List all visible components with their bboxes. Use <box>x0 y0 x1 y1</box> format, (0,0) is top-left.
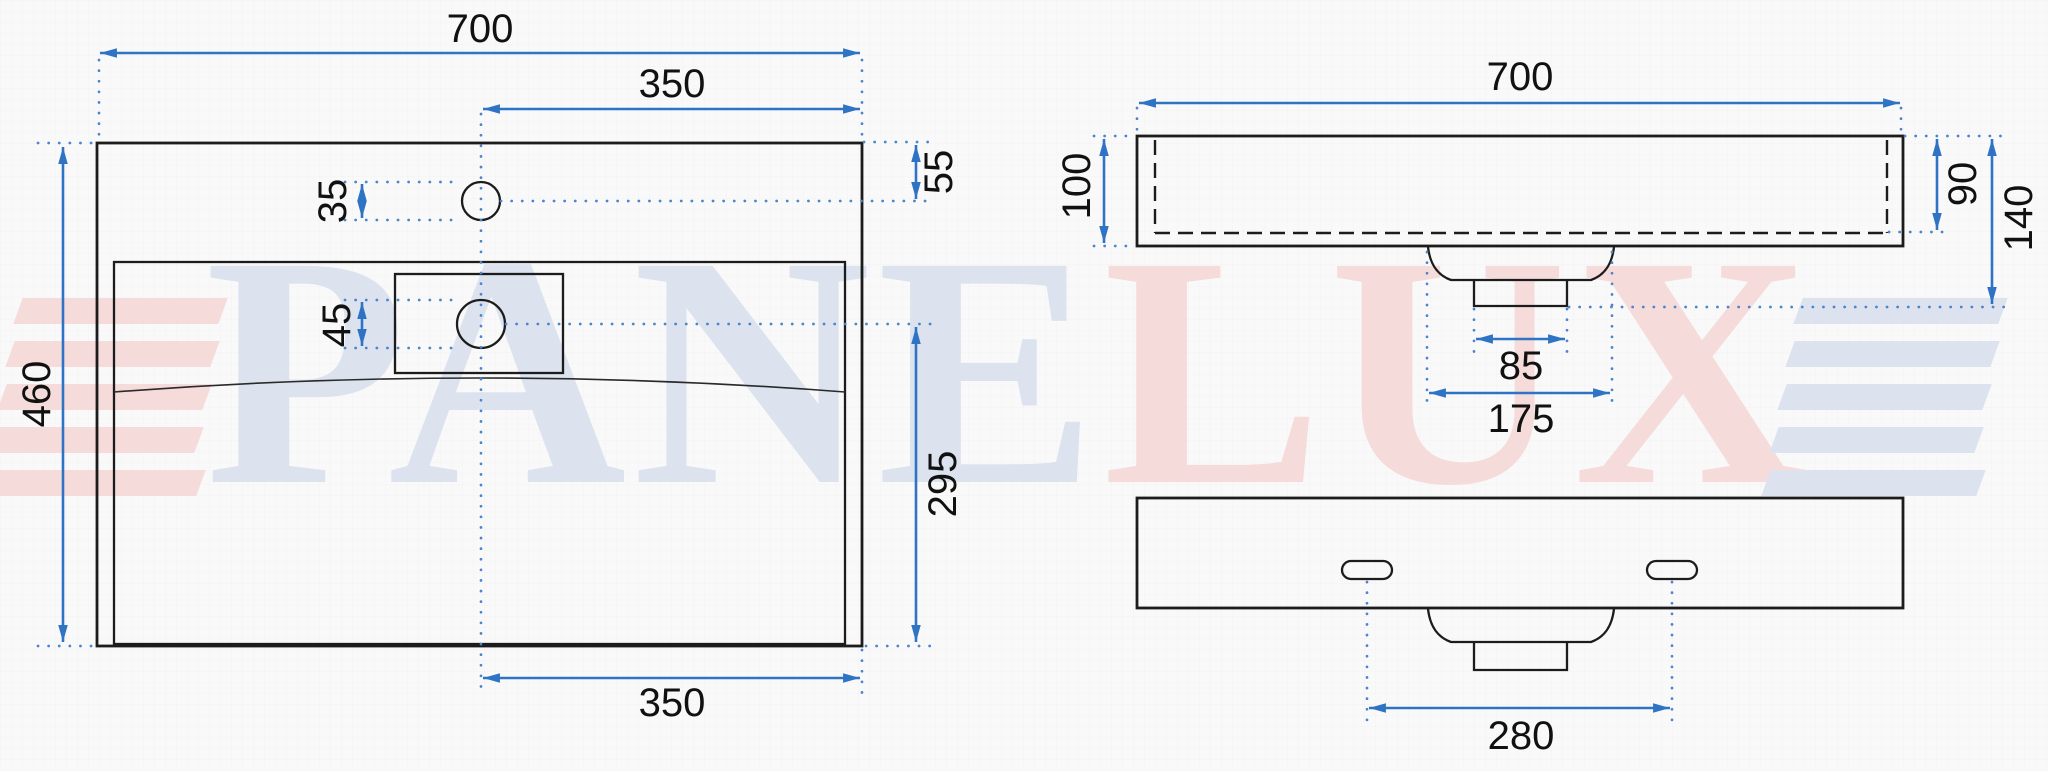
dim-label: 45 <box>315 303 359 348</box>
dim-label: 85 <box>1499 344 1544 388</box>
dim-edge-height: 100 <box>1055 139 1104 243</box>
mounting-slot-left <box>1342 561 1392 579</box>
drain-flange <box>1428 247 1614 280</box>
top-view-basin-rim <box>114 262 845 644</box>
dim-label: 35 <box>311 179 355 224</box>
dim-faucet-hole-diameter: 35 <box>311 179 362 224</box>
dim-label: 90 <box>1941 162 1985 207</box>
dim-label: 700 <box>1487 55 1554 99</box>
bottom-view-body <box>1137 498 1903 608</box>
dim-edge-to-faucet-hole: 55 <box>916 145 961 199</box>
dim-label: 55 <box>917 150 961 195</box>
mounting-slot-right <box>1647 561 1697 579</box>
dim-overflow-hole-diameter: 45 <box>315 302 362 347</box>
dim-label: 100 <box>1055 153 1099 220</box>
dim-label: 295 <box>921 451 965 518</box>
dim-label: 350 <box>639 62 706 106</box>
dim-inner-basin-depth: 90 <box>1937 139 1985 230</box>
basin-water-line <box>114 378 845 392</box>
dim-center-to-right-bottom: 350 <box>483 678 860 725</box>
dim-total-height: 140 <box>1992 139 2041 304</box>
drain-pipe <box>1474 280 1567 306</box>
dim-label: 350 <box>639 681 706 725</box>
bottom-view: 280 <box>1137 498 1903 758</box>
drain-pipe <box>1474 642 1567 670</box>
dim-overall-width-top: 700 <box>100 7 860 53</box>
dim-drain-outlet-width: 85 <box>1476 339 1565 388</box>
dim-mounting-slot-spacing: 280 <box>1369 708 1670 758</box>
dim-front-overall-width: 700 <box>1139 55 1900 103</box>
dim-label: 140 <box>1997 185 2041 252</box>
technical-drawing-canvas: PANELUX <box>0 0 2048 771</box>
dim-label: 700 <box>447 7 514 51</box>
dim-center-to-right-top: 350 <box>483 62 860 109</box>
top-view: 700 350 55 35 45 460 <box>15 7 965 725</box>
dim-label: 175 <box>1488 397 1555 441</box>
front-view-body <box>1137 136 1903 246</box>
dim-overall-depth: 460 <box>15 147 63 642</box>
overflow-hole <box>457 300 505 348</box>
dim-label: 460 <box>15 361 59 428</box>
dim-overflow-to-front: 295 <box>916 327 965 642</box>
top-view-outer-edge <box>97 143 862 646</box>
dim-label: 280 <box>1488 714 1555 758</box>
dim-drain-flange-width: 175 <box>1429 393 1610 441</box>
drain-flange <box>1428 609 1614 642</box>
dimension-drawing: 700 350 55 35 45 460 <box>0 0 2048 771</box>
front-view: 700 100 90 140 85 175 <box>1055 55 2041 441</box>
